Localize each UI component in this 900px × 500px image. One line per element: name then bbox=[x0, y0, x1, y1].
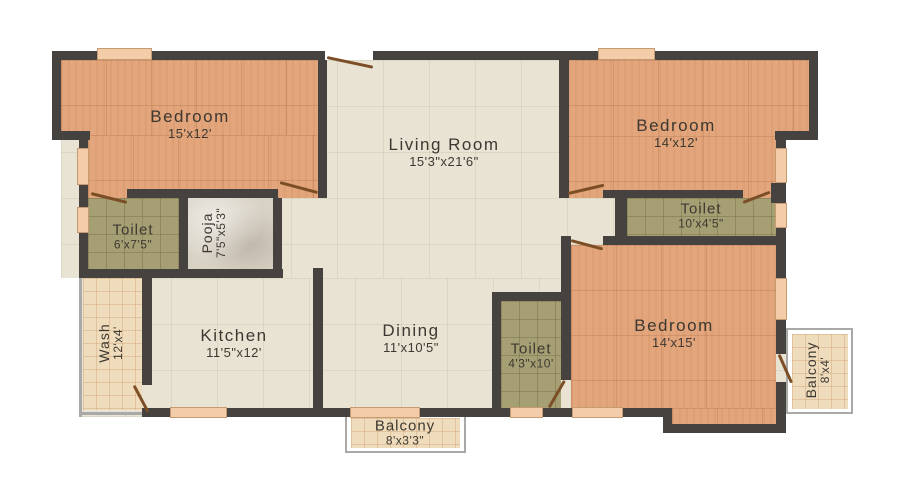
wall-segment bbox=[603, 236, 776, 245]
wall-segment bbox=[776, 320, 786, 354]
window bbox=[572, 407, 623, 418]
room-name: Toilet bbox=[112, 221, 153, 238]
label-dining: Dining 11'x10'5" bbox=[382, 321, 439, 355]
room-dims: 4'3"x10' bbox=[508, 358, 554, 372]
room-dims: 15'x12' bbox=[150, 126, 229, 141]
wall-segment bbox=[492, 292, 561, 301]
wash-frame bbox=[79, 412, 142, 415]
room-dims: 7'5"x5'3" bbox=[215, 208, 229, 258]
window bbox=[598, 48, 655, 60]
floor-bedroom-bottomright bbox=[672, 408, 776, 425]
window bbox=[775, 203, 787, 228]
room-dims: 15'3"x21'6" bbox=[389, 154, 500, 169]
floor-plan: Bedroom 15'x12' Living Room 15'3"x21'6" … bbox=[0, 0, 900, 500]
window bbox=[97, 48, 152, 60]
wall-segment bbox=[663, 424, 786, 433]
room-name: Wash bbox=[96, 323, 112, 362]
label-wash: Wash 12'x4' bbox=[96, 323, 126, 362]
room-name: Pooja bbox=[199, 208, 215, 258]
room-name: Bedroom bbox=[636, 116, 715, 136]
wall-segment bbox=[809, 51, 818, 140]
room-name: Living Room bbox=[389, 135, 500, 155]
room-dims: 8'x3'3" bbox=[375, 435, 435, 449]
wall-segment bbox=[52, 51, 325, 60]
label-toilet-left: Toilet 6'x7'5" bbox=[112, 221, 153, 252]
room-name: Bedroom bbox=[150, 107, 229, 127]
wall-segment bbox=[313, 268, 323, 417]
wall-segment bbox=[603, 190, 743, 198]
wall-segment bbox=[373, 51, 818, 60]
label-bedroom-bottomright: Bedroom 14'x15' bbox=[634, 316, 713, 350]
room-name: Bedroom bbox=[634, 316, 713, 336]
room-dims: 14'x15' bbox=[634, 335, 713, 350]
room-name: Toilet bbox=[678, 200, 724, 217]
label-toilet-right: Toilet 10'x4'5" bbox=[678, 200, 724, 231]
label-living-room: Living Room 15'3"x21'6" bbox=[389, 135, 500, 169]
window bbox=[510, 407, 543, 418]
room-dims: 8'x4' bbox=[819, 342, 833, 399]
wall-segment bbox=[771, 183, 786, 203]
room-dims: 11'5"x12' bbox=[200, 345, 267, 360]
room-name: Balcony bbox=[375, 417, 435, 434]
wall-segment bbox=[318, 60, 327, 198]
room-dims: 10'x4'5" bbox=[678, 218, 724, 232]
label-bedroom-topleft: Bedroom 15'x12' bbox=[150, 107, 229, 141]
wall-segment bbox=[561, 236, 571, 380]
label-pooja: Pooja 7'5"x5'3" bbox=[199, 208, 229, 258]
wall-segment bbox=[79, 269, 283, 278]
wall-segment bbox=[559, 60, 569, 198]
label-toilet-bottom: Toilet 4'3"x10' bbox=[508, 340, 554, 371]
wall-segment bbox=[775, 131, 818, 140]
window bbox=[775, 148, 787, 183]
room-dims: 12'x4' bbox=[112, 323, 126, 362]
label-balcony-bottom: Balcony 8'x3'3" bbox=[375, 417, 435, 448]
wall-segment bbox=[273, 198, 282, 278]
label-bedroom-topright: Bedroom 14'x12' bbox=[636, 116, 715, 150]
wall-segment bbox=[142, 277, 152, 385]
room-name: Kitchen bbox=[200, 326, 267, 346]
room-name: Balcony bbox=[803, 342, 819, 399]
room-name: Toilet bbox=[508, 340, 554, 357]
label-balcony-right: Balcony 8'x4' bbox=[803, 342, 833, 399]
window bbox=[170, 407, 227, 418]
wash-frame bbox=[79, 278, 82, 417]
balcony-door bbox=[350, 407, 420, 418]
window bbox=[77, 207, 89, 233]
wall-segment bbox=[179, 198, 188, 269]
wall-segment bbox=[776, 228, 786, 278]
room-dims: 6'x7'5" bbox=[112, 239, 153, 253]
room-dims: 14'x12' bbox=[636, 135, 715, 150]
wall-segment bbox=[615, 198, 627, 236]
window bbox=[775, 278, 787, 320]
room-name: Dining bbox=[382, 321, 439, 341]
wall-segment bbox=[127, 189, 278, 198]
label-kitchen: Kitchen 11'5"x12' bbox=[200, 326, 267, 360]
window bbox=[77, 148, 89, 185]
wall-segment bbox=[492, 292, 501, 417]
wall-segment bbox=[52, 51, 61, 140]
room-dims: 11'x10'5" bbox=[382, 340, 439, 355]
